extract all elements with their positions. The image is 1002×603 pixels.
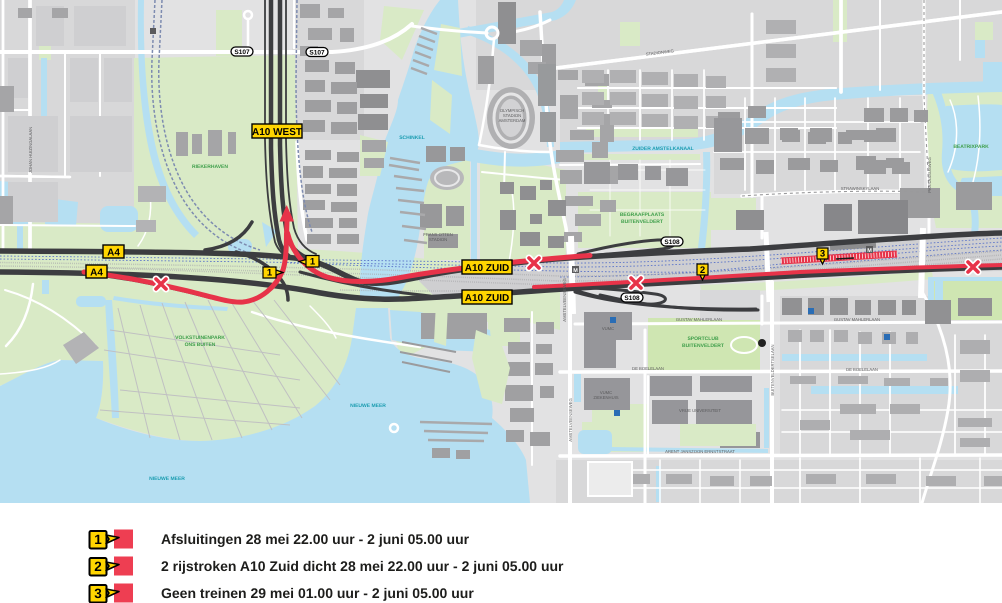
- svg-text:STADION: STADION: [429, 237, 447, 242]
- svg-text:S107: S107: [234, 49, 250, 56]
- svg-text:NIEUWE MEER: NIEUWE MEER: [350, 403, 386, 409]
- svg-text:BUITENVELDERTSELAAN: BUITENVELDERTSELAAN: [770, 344, 775, 395]
- svg-text:S108: S108: [664, 239, 680, 246]
- svg-text:AMSTELVEENSEWEG: AMSTELVEENSEWEG: [562, 278, 567, 321]
- svg-text:S108: S108: [624, 295, 640, 302]
- svg-text:DE BOELELAAN: DE BOELELAAN: [846, 367, 878, 372]
- svg-text:BEGRAAFPLAATS: BEGRAAFPLAATS: [620, 212, 665, 218]
- svg-text:BUITENVELDERT: BUITENVELDERT: [621, 219, 663, 225]
- svg-text:GUSTAV MAHLERLAAN: GUSTAV MAHLERLAAN: [676, 317, 722, 322]
- svg-text:1: 1: [267, 268, 273, 279]
- svg-text:ONS BUITEN: ONS BUITEN: [185, 342, 216, 348]
- svg-text:Geen treinen 29 mei 01.00 uur: Geen treinen 29 mei 01.00 uur - 2 juni 0…: [161, 585, 474, 601]
- svg-text:3: 3: [820, 249, 825, 260]
- svg-text:ZIEKENHUIS: ZIEKENHUIS: [593, 395, 618, 400]
- svg-text:1: 1: [94, 532, 102, 547]
- svg-text:VUMC: VUMC: [602, 326, 614, 331]
- svg-text:AMSTERDAM: AMSTERDAM: [499, 118, 526, 123]
- svg-text:S107: S107: [309, 50, 325, 57]
- svg-text:VOLKSTUINENPARK: VOLKSTUINENPARK: [175, 335, 225, 341]
- svg-text:2 rijstroken A10 Zuid dicht 28: 2 rijstroken A10 Zuid dicht 28 mei 22.00…: [161, 558, 564, 574]
- svg-text:A4: A4: [107, 248, 120, 259]
- svg-text:RIEKERHAVEN: RIEKERHAVEN: [192, 164, 228, 170]
- svg-text:DE BOELELAAN: DE BOELELAAN: [632, 366, 664, 371]
- svg-text:2: 2: [700, 265, 705, 276]
- svg-text:ARENT JANSZOON ERNSTSTRAAT: ARENT JANSZOON ERNSTSTRAAT: [665, 449, 735, 454]
- svg-text:ZUIDER AMSTELKANAAL: ZUIDER AMSTELKANAAL: [632, 146, 693, 152]
- svg-text:A4: A4: [90, 268, 103, 279]
- svg-text:VRIJE UNIVERSITEIT: VRIJE UNIVERSITEIT: [679, 408, 721, 413]
- svg-text:BUITENVELDERT: BUITENVELDERT: [682, 343, 724, 349]
- svg-text:SCHINKEL: SCHINKEL: [399, 135, 425, 141]
- svg-text:AMSTELVEENSEWEG: AMSTELVEENSEWEG: [568, 398, 573, 441]
- svg-text:M: M: [867, 248, 872, 254]
- svg-text:3: 3: [94, 586, 102, 601]
- svg-text:M: M: [573, 268, 578, 274]
- svg-text:2: 2: [94, 559, 102, 574]
- svg-text:Afsluitingen 28 mei 22.00 uur: Afsluitingen 28 mei 22.00 uur - 2 juni 0…: [161, 531, 470, 547]
- svg-text:A10 WEST: A10 WEST: [252, 127, 302, 138]
- svg-text:PARNASSUSWEG: PARNASSUSWEG: [927, 157, 932, 193]
- svg-text:BEATRIXPARK: BEATRIXPARK: [953, 144, 989, 150]
- svg-text:NIEUWE MEER: NIEUWE MEER: [149, 476, 185, 482]
- svg-text:1: 1: [310, 257, 316, 268]
- svg-text:GUSTAV MAHLERLAAN: GUSTAV MAHLERLAAN: [834, 317, 880, 322]
- svg-text:STRAWINSKYLAAN: STRAWINSKYLAAN: [841, 186, 879, 191]
- svg-text:JOHAN HUIZINGALAAN: JOHAN HUIZINGALAAN: [28, 127, 33, 173]
- svg-text:SPORTCLUB: SPORTCLUB: [687, 336, 719, 342]
- svg-text:A10 ZUID: A10 ZUID: [465, 293, 509, 304]
- svg-text:A10 ZUID: A10 ZUID: [465, 263, 509, 274]
